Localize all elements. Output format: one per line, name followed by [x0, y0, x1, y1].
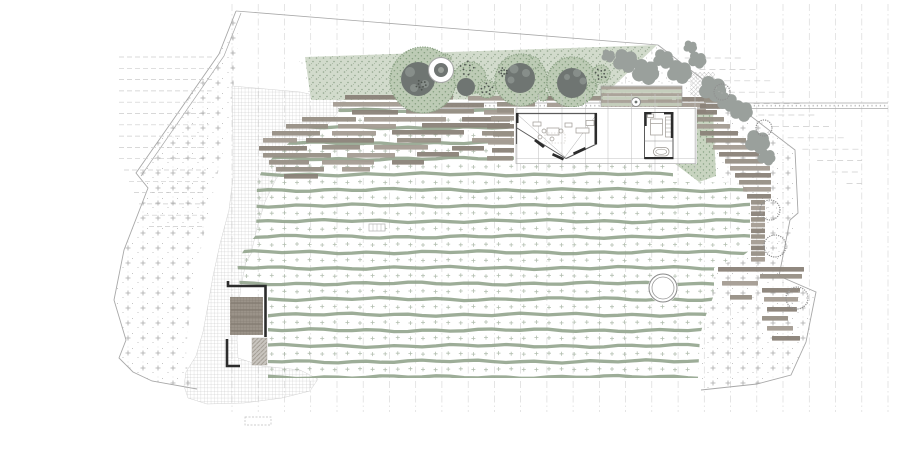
water-tank-layer [648, 273, 678, 303]
site-plan-svg [0, 0, 901, 468]
site-plan-canvas [0, 0, 901, 468]
